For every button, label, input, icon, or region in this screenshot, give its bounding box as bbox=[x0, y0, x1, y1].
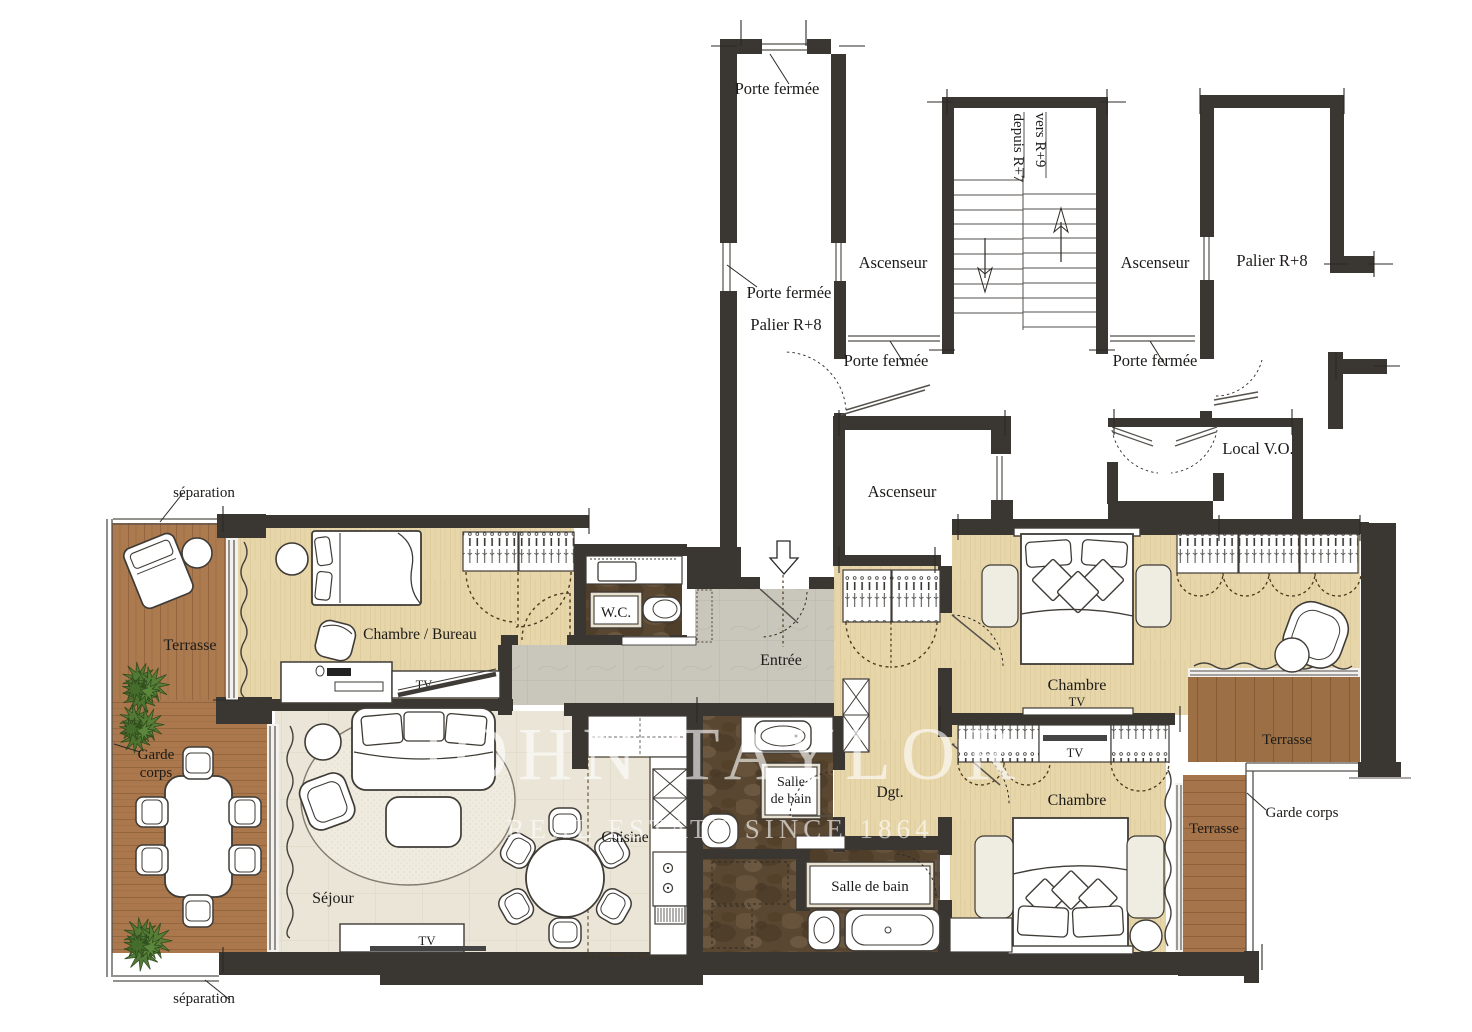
svg-text:Entrée: Entrée bbox=[760, 652, 802, 669]
svg-text:Porte fermée: Porte fermée bbox=[747, 283, 832, 302]
svg-text:Porte fermée: Porte fermée bbox=[735, 79, 820, 98]
svg-text:REAL ESTATE SINCE 1864: REAL ESTATE SINCE 1864 bbox=[506, 814, 933, 844]
svg-text:corps: corps bbox=[140, 765, 173, 781]
svg-text:Palier R+8: Palier R+8 bbox=[1236, 251, 1307, 270]
svg-text:Local V.O.: Local V.O. bbox=[1222, 439, 1293, 458]
svg-text:TV: TV bbox=[1069, 695, 1086, 709]
svg-text:Ascenseur: Ascenseur bbox=[868, 482, 937, 501]
svg-text:TV: TV bbox=[1067, 746, 1084, 760]
svg-text:Terrasse: Terrasse bbox=[163, 637, 216, 654]
svg-text:Chambre: Chambre bbox=[1048, 792, 1107, 809]
svg-text:Séjour: Séjour bbox=[312, 890, 354, 907]
svg-text:Chambre / Bureau: Chambre / Bureau bbox=[363, 626, 477, 643]
svg-text:Ascenseur: Ascenseur bbox=[859, 253, 928, 272]
svg-text:W.C.: W.C. bbox=[601, 605, 631, 621]
svg-text:Ascenseur: Ascenseur bbox=[1121, 253, 1190, 272]
svg-text:Salle de bain: Salle de bain bbox=[831, 879, 909, 895]
svg-text:JOHN TAYLOR: JOHN TAYLOR bbox=[415, 713, 1025, 796]
svg-text:séparation: séparation bbox=[173, 485, 235, 501]
svg-text:séparation: séparation bbox=[173, 991, 235, 1007]
svg-text:Chambre: Chambre bbox=[1048, 677, 1107, 694]
svg-text:Garde: Garde bbox=[138, 747, 175, 763]
svg-text:Terrasse: Terrasse bbox=[1189, 821, 1239, 837]
svg-text:Palier R+8: Palier R+8 bbox=[750, 315, 821, 334]
svg-text:TV: TV bbox=[418, 933, 436, 948]
svg-text:Garde corps: Garde corps bbox=[1266, 805, 1339, 821]
svg-text:Terrasse: Terrasse bbox=[1262, 732, 1312, 748]
svg-text:Porte fermée: Porte fermée bbox=[1113, 351, 1198, 370]
svg-text:Porte fermée: Porte fermée bbox=[844, 351, 929, 370]
